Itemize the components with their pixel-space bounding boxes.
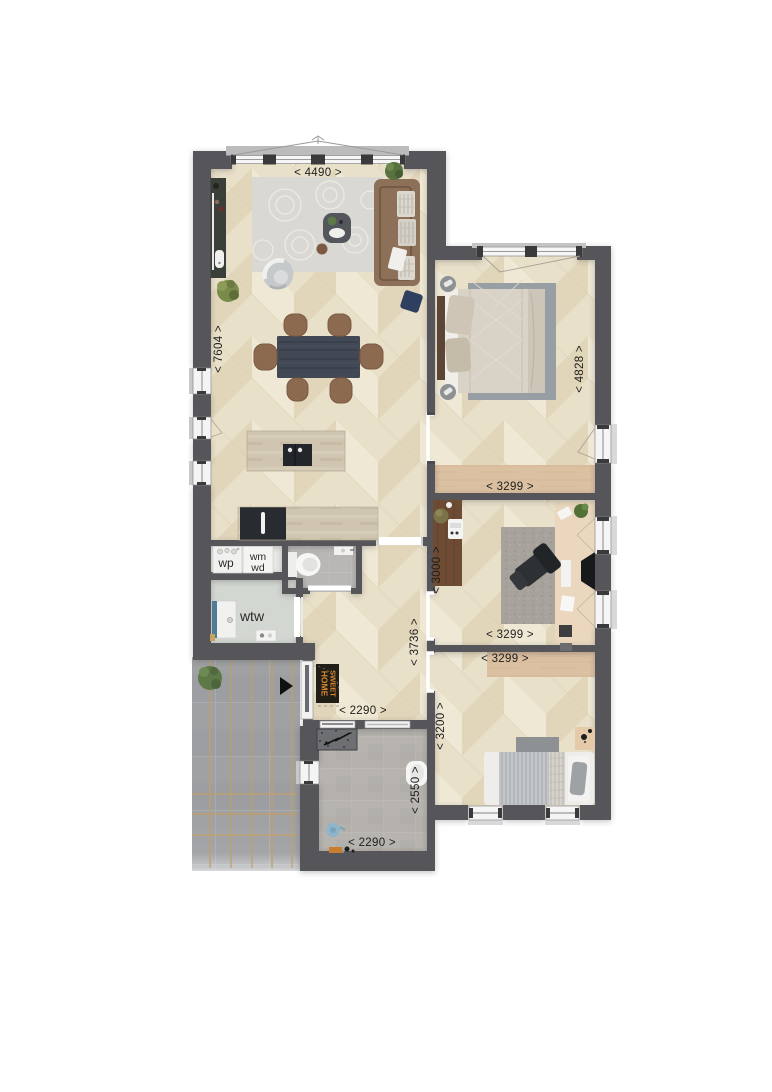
svg-text:< 3736 >: < 3736 > xyxy=(409,618,421,666)
svg-text:< 7604 >: < 7604 > xyxy=(213,325,225,373)
svg-text:SWEET: SWEET xyxy=(329,670,338,697)
svg-text:< 2290 >: < 2290 > xyxy=(339,705,387,717)
svg-text:< 2290 >: < 2290 > xyxy=(348,837,396,849)
svg-text:HOME: HOME xyxy=(320,671,330,697)
svg-text:< 4490 >: < 4490 > xyxy=(294,167,342,179)
svg-text:< 4828 >: < 4828 > xyxy=(574,345,586,393)
svg-text:< 3200 >: < 3200 > xyxy=(435,702,447,750)
svg-text:< 2550 >: < 2550 > xyxy=(410,766,422,814)
svg-text:wtw: wtw xyxy=(239,608,265,624)
svg-text:< 3299 >: < 3299 > xyxy=(486,481,534,493)
svg-text:wp: wp xyxy=(217,556,234,570)
svg-text:< 3299 >: < 3299 > xyxy=(486,629,534,641)
svg-text:< 3000 >: < 3000 > xyxy=(431,546,443,594)
svg-text:wd: wd xyxy=(250,562,265,574)
svg-text:< 3299 >: < 3299 > xyxy=(481,653,529,665)
